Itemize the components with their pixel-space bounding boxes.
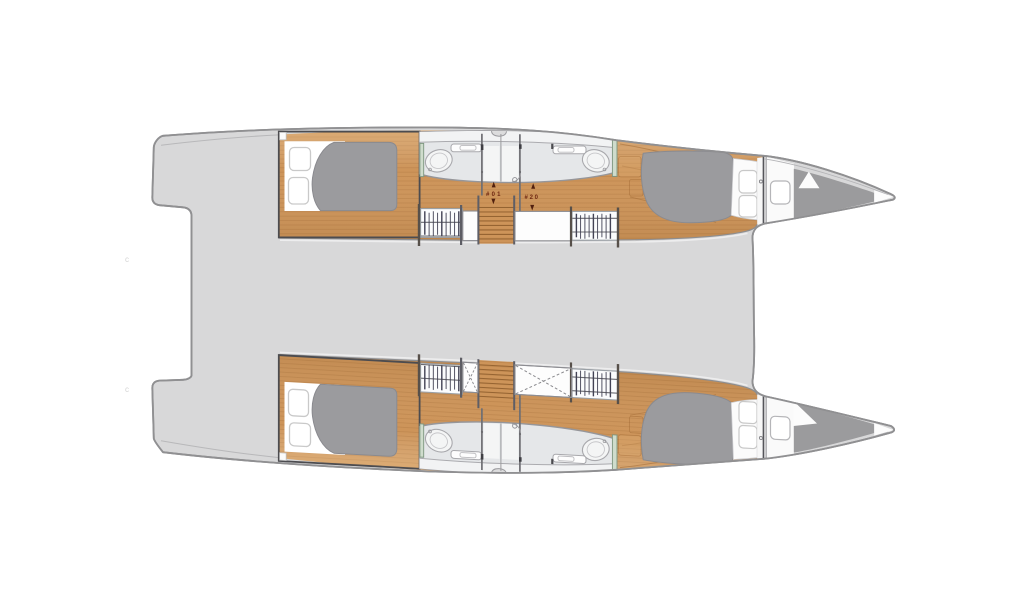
svg-text:c: c [125,255,129,264]
svg-text:c: c [125,385,129,394]
svg-text:#01: #01 [486,192,501,198]
svg-text:#20: #20 [525,195,539,201]
